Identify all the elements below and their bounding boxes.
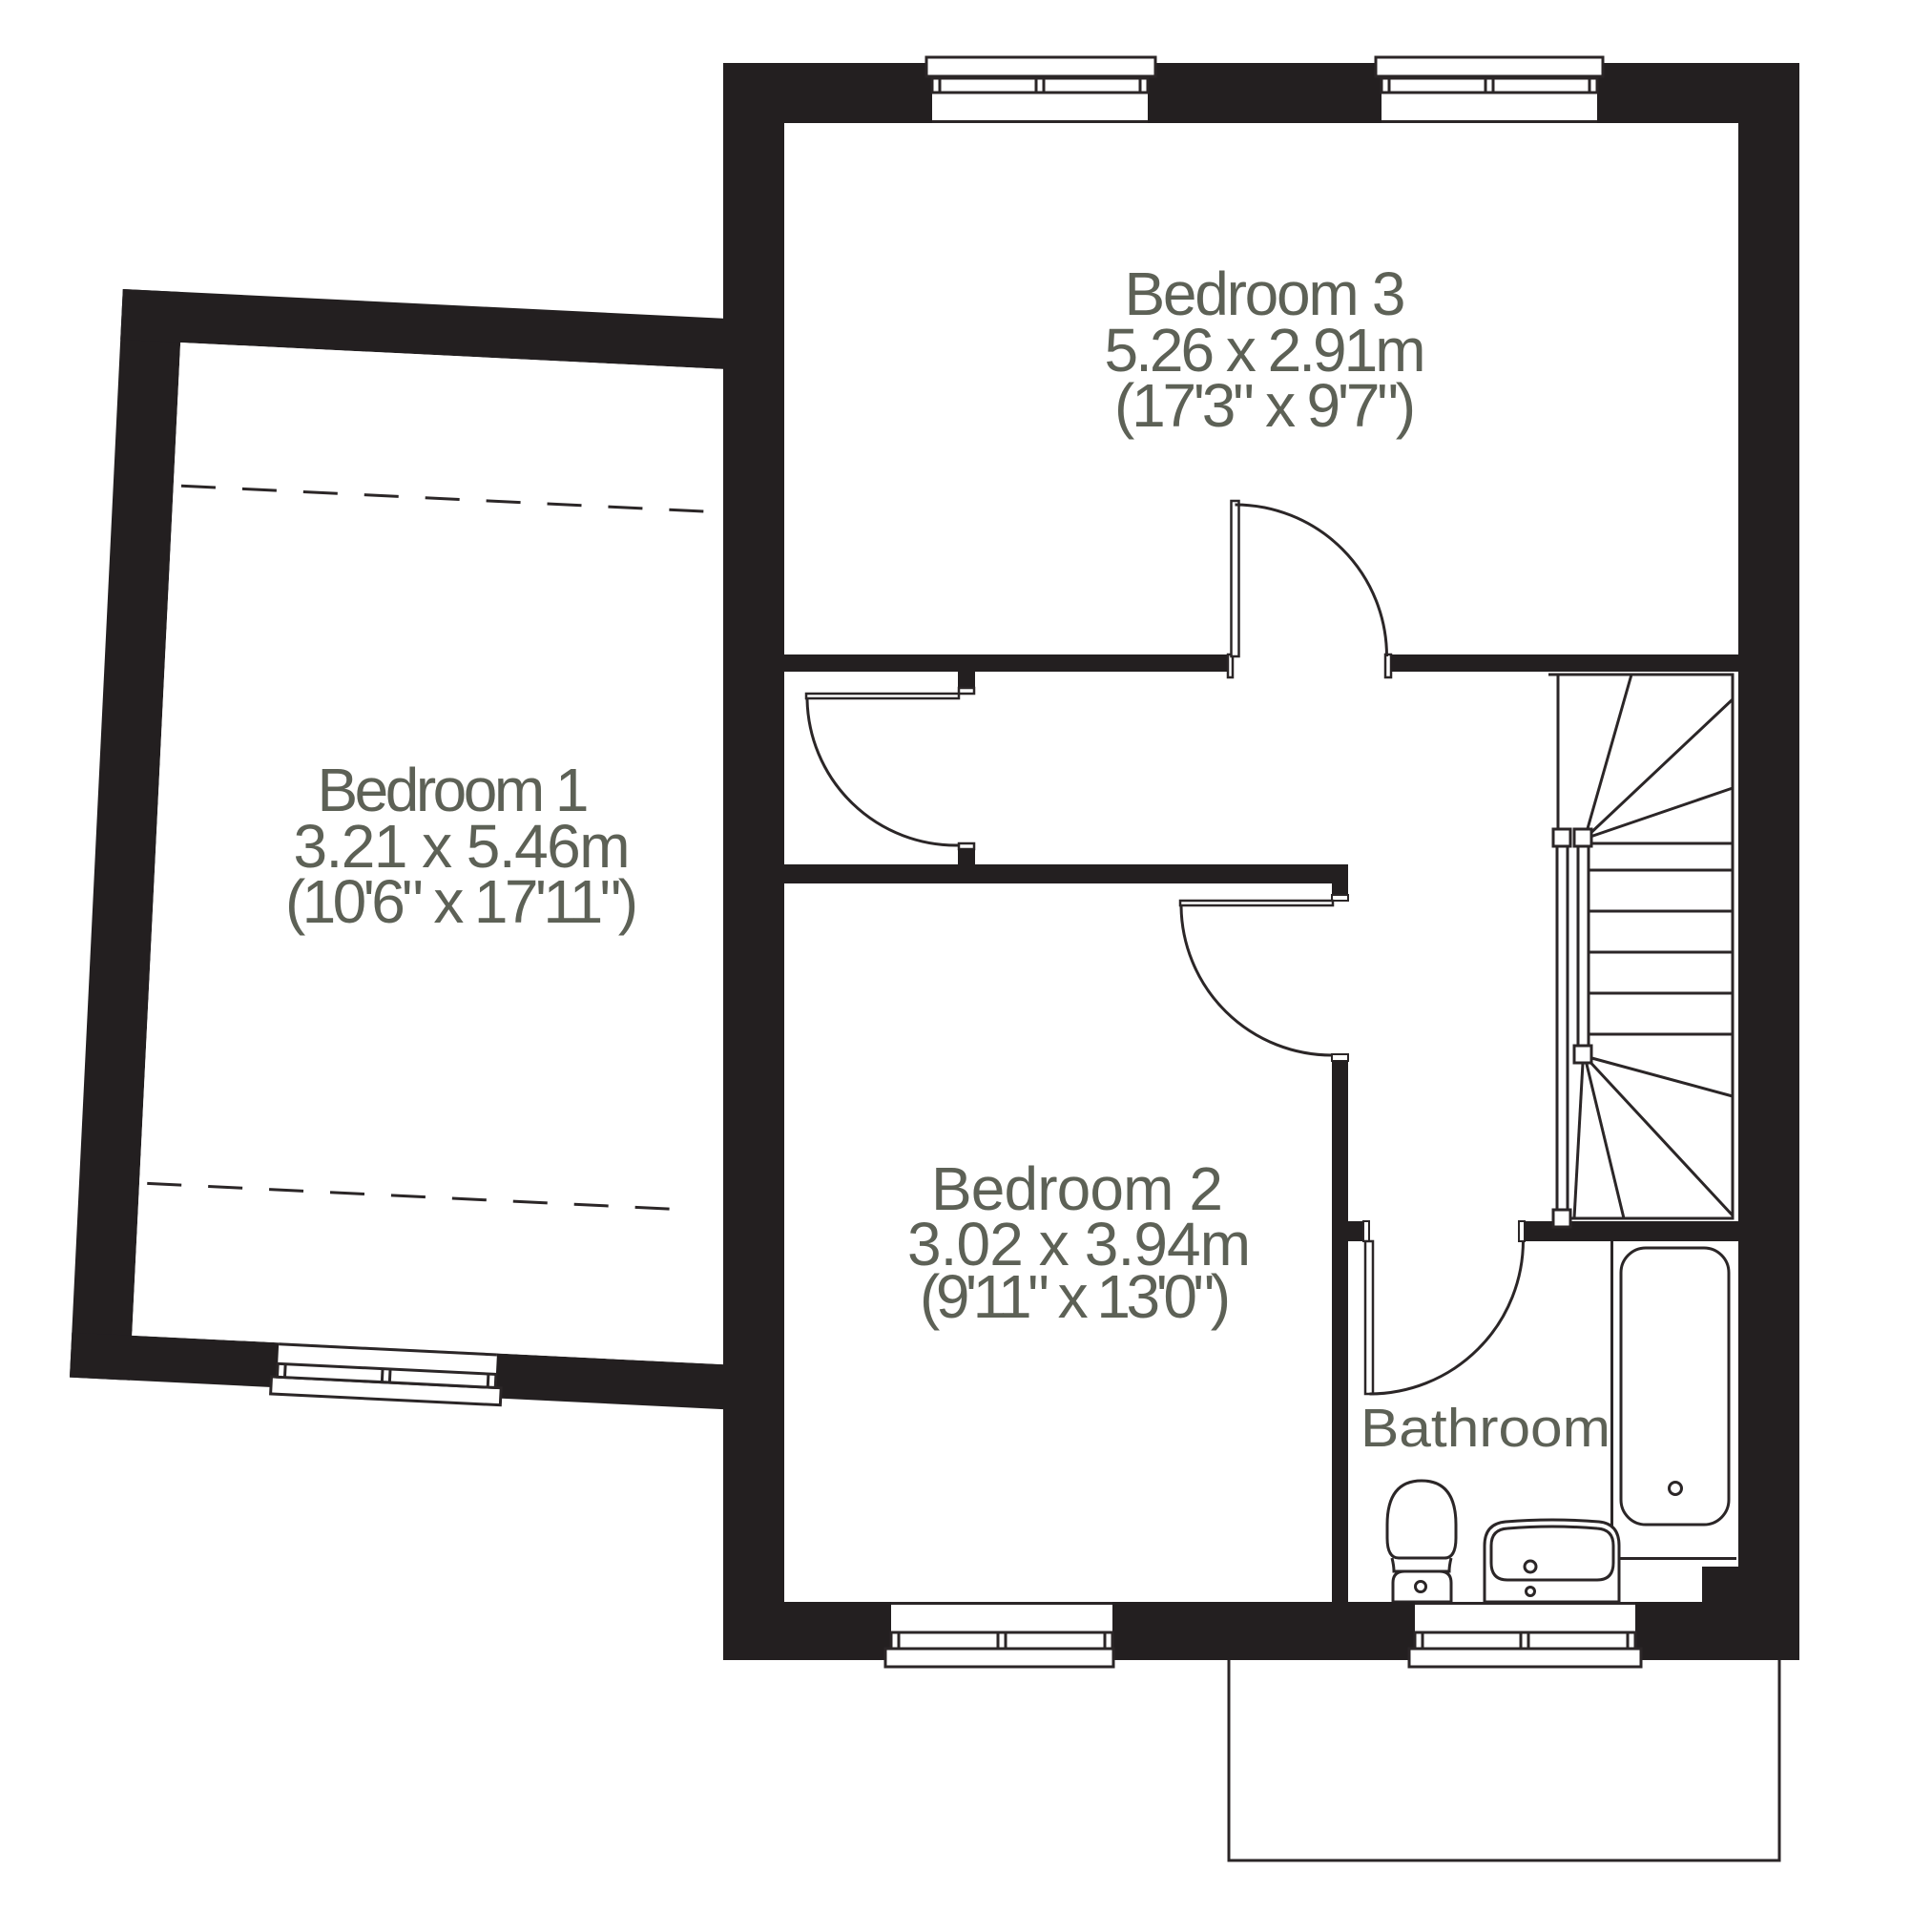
svg-text:(9'11" x 13'0"): (9'11" x 13'0") — [920, 1262, 1231, 1331]
svg-text:(10'6" x 17'11"): (10'6" x 17'11") — [285, 867, 638, 936]
svg-text:(17'3" x 9'7"): (17'3" x 9'7") — [1114, 371, 1416, 440]
svg-text:Bathroom: Bathroom — [1361, 1398, 1610, 1459]
